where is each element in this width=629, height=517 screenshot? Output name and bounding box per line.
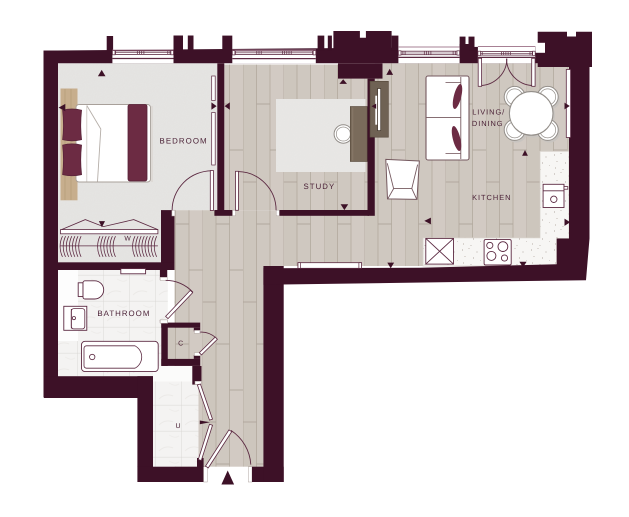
svg-text:LIVING/: LIVING/ bbox=[472, 107, 505, 116]
svg-text:W: W bbox=[124, 235, 131, 242]
svg-text:DINING: DINING bbox=[472, 119, 504, 128]
svg-text:U: U bbox=[175, 423, 180, 430]
svg-text:BATHROOM: BATHROOM bbox=[97, 309, 150, 318]
svg-text:C: C bbox=[178, 341, 183, 348]
svg-text:STUDY: STUDY bbox=[304, 182, 336, 191]
svg-text:BEDROOM: BEDROOM bbox=[160, 137, 208, 146]
svg-text:KITCHEN: KITCHEN bbox=[472, 193, 511, 202]
